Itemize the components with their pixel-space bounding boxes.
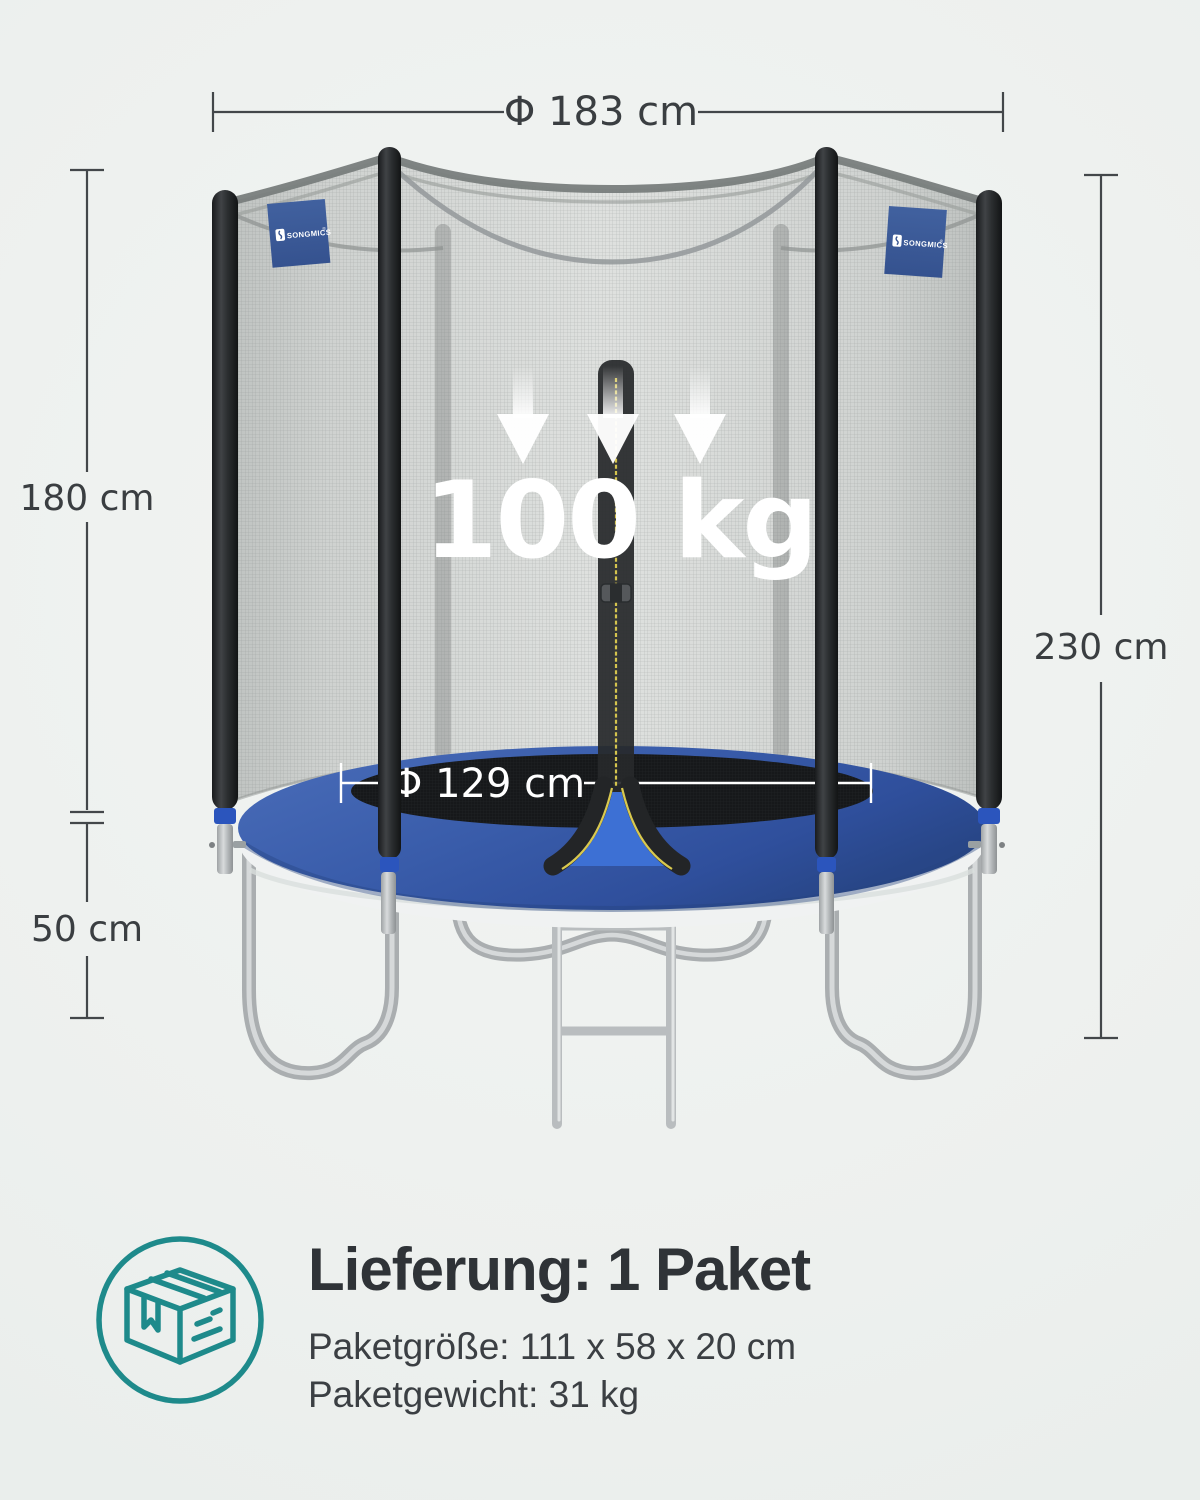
pole-bolt [209,842,215,848]
ladder [557,896,673,1124]
label-base-height: 50 cm [31,909,143,950]
delivery-heading: Lieferung: 1 Paket [308,1240,1008,1300]
zipper-buckle [601,584,631,602]
pole-blue-band [817,857,836,872]
pole-clamp [217,824,233,874]
dimension-left-lines [70,170,104,1018]
pole-blue-band [978,808,1000,824]
pole-clamp [819,872,834,934]
delivery-package-size: Paketgröße: 111 x 58 x 20 cm [308,1328,1008,1365]
pole-blue-band [380,857,399,872]
package-box-icon [127,1270,233,1362]
pole-bracket [233,841,246,848]
delivery-icon [93,1236,267,1410]
pole-clamp [381,872,396,934]
label-jumping-diameter: Φ 129 cm [391,761,585,807]
brand-tag-right: SONGMICS ® [884,206,950,278]
label-max-load: 100 kg [424,459,817,582]
label-outer-diameter: Φ 183 cm [504,89,698,135]
brand-tag-left: SONGMICS ® [267,199,334,268]
label-total-height: 230 cm [1033,627,1168,668]
pole-mid-left [378,147,401,934]
product-infographic: Φ 183 cm 180 cm 50 cm 230 cm SONGMICS ® … [0,0,1200,1500]
dimension-right-line [1084,175,1118,1038]
pole-blue-band [214,808,236,824]
pole-bracket [968,841,981,848]
pole-clamp [981,824,997,874]
pole-mid-right [815,147,838,934]
pole-bolt [999,842,1005,848]
delivery-package-weight: Paketgewicht: 31 kg [308,1376,1008,1413]
label-net-height: 180 cm [19,478,154,519]
